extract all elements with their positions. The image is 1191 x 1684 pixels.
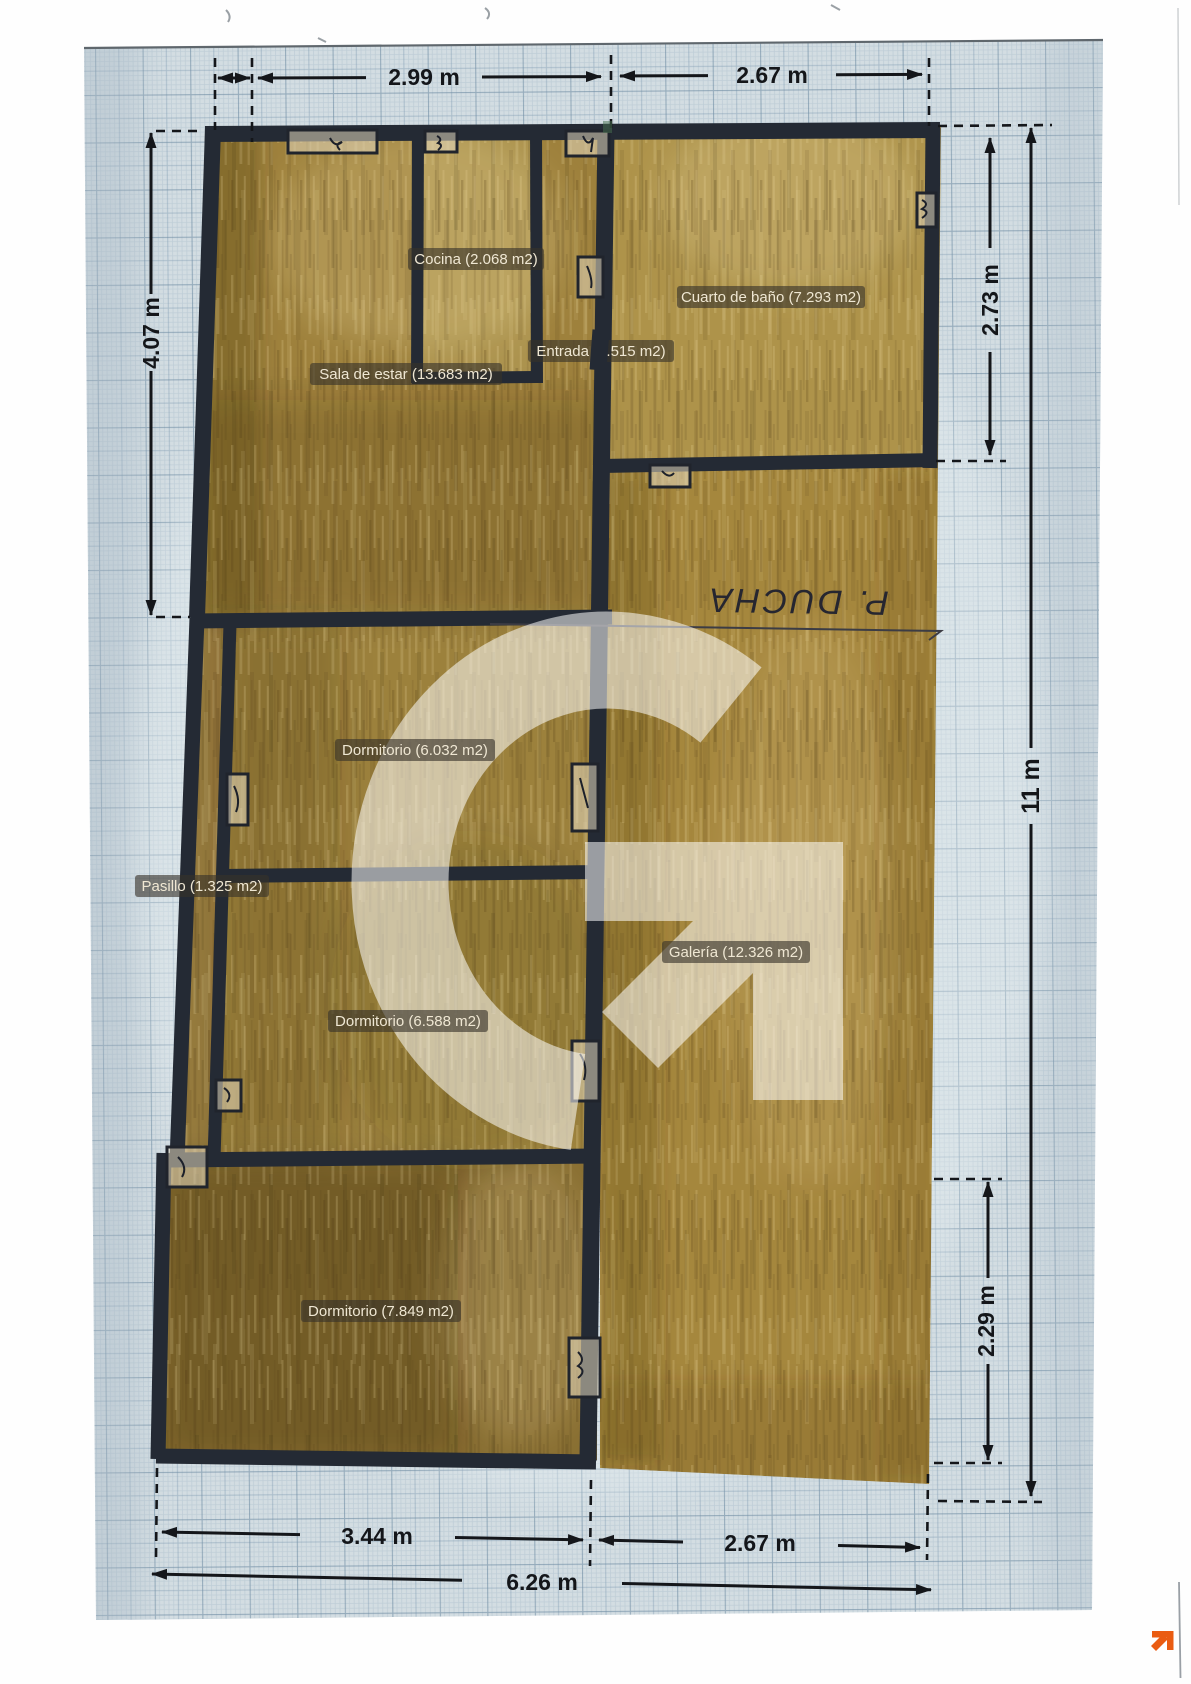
svg-text:6.26 m: 6.26 m bbox=[506, 1569, 578, 1595]
svg-text:4.07 m: 4.07 m bbox=[138, 297, 164, 369]
svg-text:2.29 m: 2.29 m bbox=[973, 1285, 999, 1357]
svg-text:Cuarto de baño (7.293 m2): Cuarto de baño (7.293 m2) bbox=[681, 289, 861, 306]
svg-text:2.73 m: 2.73 m bbox=[977, 264, 1003, 336]
svg-text:2.67 m: 2.67 m bbox=[724, 1530, 796, 1556]
svg-text:P. DUCHA: P. DUCHA bbox=[706, 580, 889, 621]
svg-text:2.99 m: 2.99 m bbox=[388, 64, 460, 90]
svg-text:Dormitorio (6.588 m2): Dormitorio (6.588 m2) bbox=[335, 1013, 481, 1030]
svg-text:2.67 m: 2.67 m bbox=[736, 62, 808, 88]
svg-text:11 m: 11 m bbox=[1017, 758, 1045, 814]
svg-text:Pasillo (1.325 m2): Pasillo (1.325 m2) bbox=[142, 878, 263, 895]
svg-text:Dormitorio (6.032 m2): Dormitorio (6.032 m2) bbox=[342, 742, 488, 759]
svg-text:Cocina (2.068 m2): Cocina (2.068 m2) bbox=[414, 251, 537, 268]
svg-text:Dormitorio (7.849 m2): Dormitorio (7.849 m2) bbox=[308, 1303, 454, 1320]
svg-text:Sala de estar (13.683 m2): Sala de estar (13.683 m2) bbox=[319, 366, 492, 383]
svg-text:3.44 m: 3.44 m bbox=[341, 1523, 413, 1549]
svg-text:Galería (12.326 m2): Galería (12.326 m2) bbox=[669, 944, 803, 961]
